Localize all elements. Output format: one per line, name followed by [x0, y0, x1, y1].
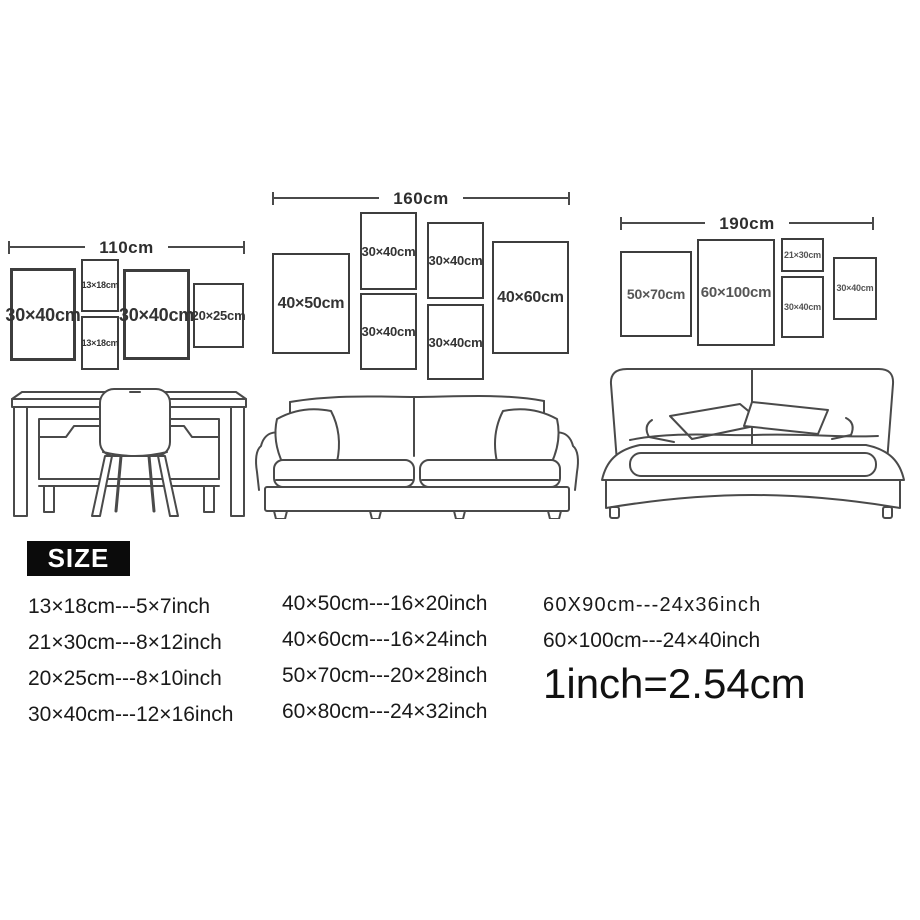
- dimension-rule: [789, 222, 872, 224]
- size-row: 60×80cm---24×32inch: [282, 694, 487, 730]
- dimension-rule: [10, 246, 85, 248]
- size-row: 60×100cm---24×40inch: [543, 623, 806, 658]
- dimension-rule: [168, 246, 243, 248]
- size-row: 30×40cm---12×16inch: [28, 697, 233, 733]
- wall-frame-30x40: 30×40cm: [10, 268, 76, 361]
- dimension-line-190cm: 190cm: [620, 215, 874, 231]
- size-chart-image: 110cm 30×40cm 13×18cm 13×18cm 30×40cm 20…: [0, 0, 920, 920]
- wall-frame-30x40: 30×40cm: [360, 293, 417, 370]
- frame-size-label: 30×40cm: [429, 254, 483, 267]
- frame-size-label: 30×40cm: [362, 325, 416, 338]
- dimension-tick-right: [568, 192, 570, 205]
- dimension-label: 160cm: [379, 190, 462, 207]
- wall-frame-40x50: 40×50cm: [272, 253, 350, 354]
- dimension-rule: [274, 197, 379, 199]
- wall-frame-13x18: 13×18cm: [81, 259, 119, 312]
- frame-size-label: 13×18cm: [82, 281, 119, 290]
- wall-frame-50x70: 50×70cm: [620, 251, 692, 337]
- size-row: 40×50cm---16×20inch: [282, 586, 487, 622]
- dimension-tick-right: [872, 217, 874, 230]
- frame-size-label: 21×30cm: [784, 251, 821, 260]
- wall-frame-60x100: 60×100cm: [697, 239, 775, 346]
- wall-frame-30x40: 30×40cm: [427, 222, 484, 299]
- size-column-1: 13×18cm---5×7inch 21×30cm---8×12inch 20×…: [28, 589, 233, 733]
- dimension-tick-right: [243, 241, 245, 254]
- sofa-drawing: [252, 386, 582, 519]
- dimension-line-160cm: 160cm: [272, 190, 570, 206]
- wall-frame-30x40: 30×40cm: [123, 269, 190, 360]
- wall-frame-30x40: 30×40cm: [781, 276, 824, 338]
- frame-size-label: 40×50cm: [278, 296, 345, 312]
- frame-size-label: 13×18cm: [82, 339, 119, 348]
- frame-size-label: 40×60cm: [497, 290, 564, 306]
- inch-conversion-note: 1inch=2.54cm: [543, 660, 806, 708]
- frame-size-label: 30×40cm: [362, 245, 416, 258]
- size-row: 13×18cm---5×7inch: [28, 589, 233, 625]
- wall-frame-13x18: 13×18cm: [81, 316, 119, 370]
- wall-frame-21x30: 21×30cm: [781, 238, 824, 272]
- frame-size-label: 20×25cm: [192, 309, 246, 322]
- wall-frame-30x40: 30×40cm: [833, 257, 877, 320]
- frame-size-label: 30×40cm: [119, 306, 194, 324]
- size-row: 20×25cm---8×10inch: [28, 661, 233, 697]
- size-row: 60X90cm---24x36inch: [543, 588, 806, 623]
- size-row: 21×30cm---8×12inch: [28, 625, 233, 661]
- dimension-label: 190cm: [705, 215, 788, 232]
- wall-frame-30x40: 30×40cm: [427, 304, 484, 380]
- wall-frame-30x40: 30×40cm: [360, 212, 417, 290]
- frame-size-label: 30×40cm: [5, 306, 80, 324]
- size-row: 50×70cm---20×28inch: [282, 658, 487, 694]
- frame-size-label: 30×40cm: [429, 336, 483, 349]
- wall-frame-20x25: 20×25cm: [193, 283, 244, 348]
- frame-size-label: 30×40cm: [837, 284, 874, 293]
- dimension-line-110cm: 110cm: [8, 239, 245, 255]
- size-badge: SIZE: [27, 541, 130, 576]
- size-row: 40×60cm---16×24inch: [282, 622, 487, 658]
- frame-size-label: 50×70cm: [627, 287, 685, 301]
- dimension-rule: [463, 197, 568, 199]
- size-column-2: 40×50cm---16×20inch 40×60cm---16×24inch …: [282, 586, 487, 730]
- dimension-rule: [622, 222, 705, 224]
- size-column-3: 60X90cm---24x36inch 60×100cm---24×40inch…: [543, 588, 806, 708]
- wall-frame-40x60: 40×60cm: [492, 241, 569, 354]
- bed-drawing: [594, 362, 912, 519]
- dimension-label: 110cm: [85, 239, 168, 256]
- frame-size-label: 30×40cm: [784, 303, 821, 312]
- frame-size-label: 60×100cm: [701, 285, 772, 300]
- desk-chair-drawing: [8, 383, 250, 519]
